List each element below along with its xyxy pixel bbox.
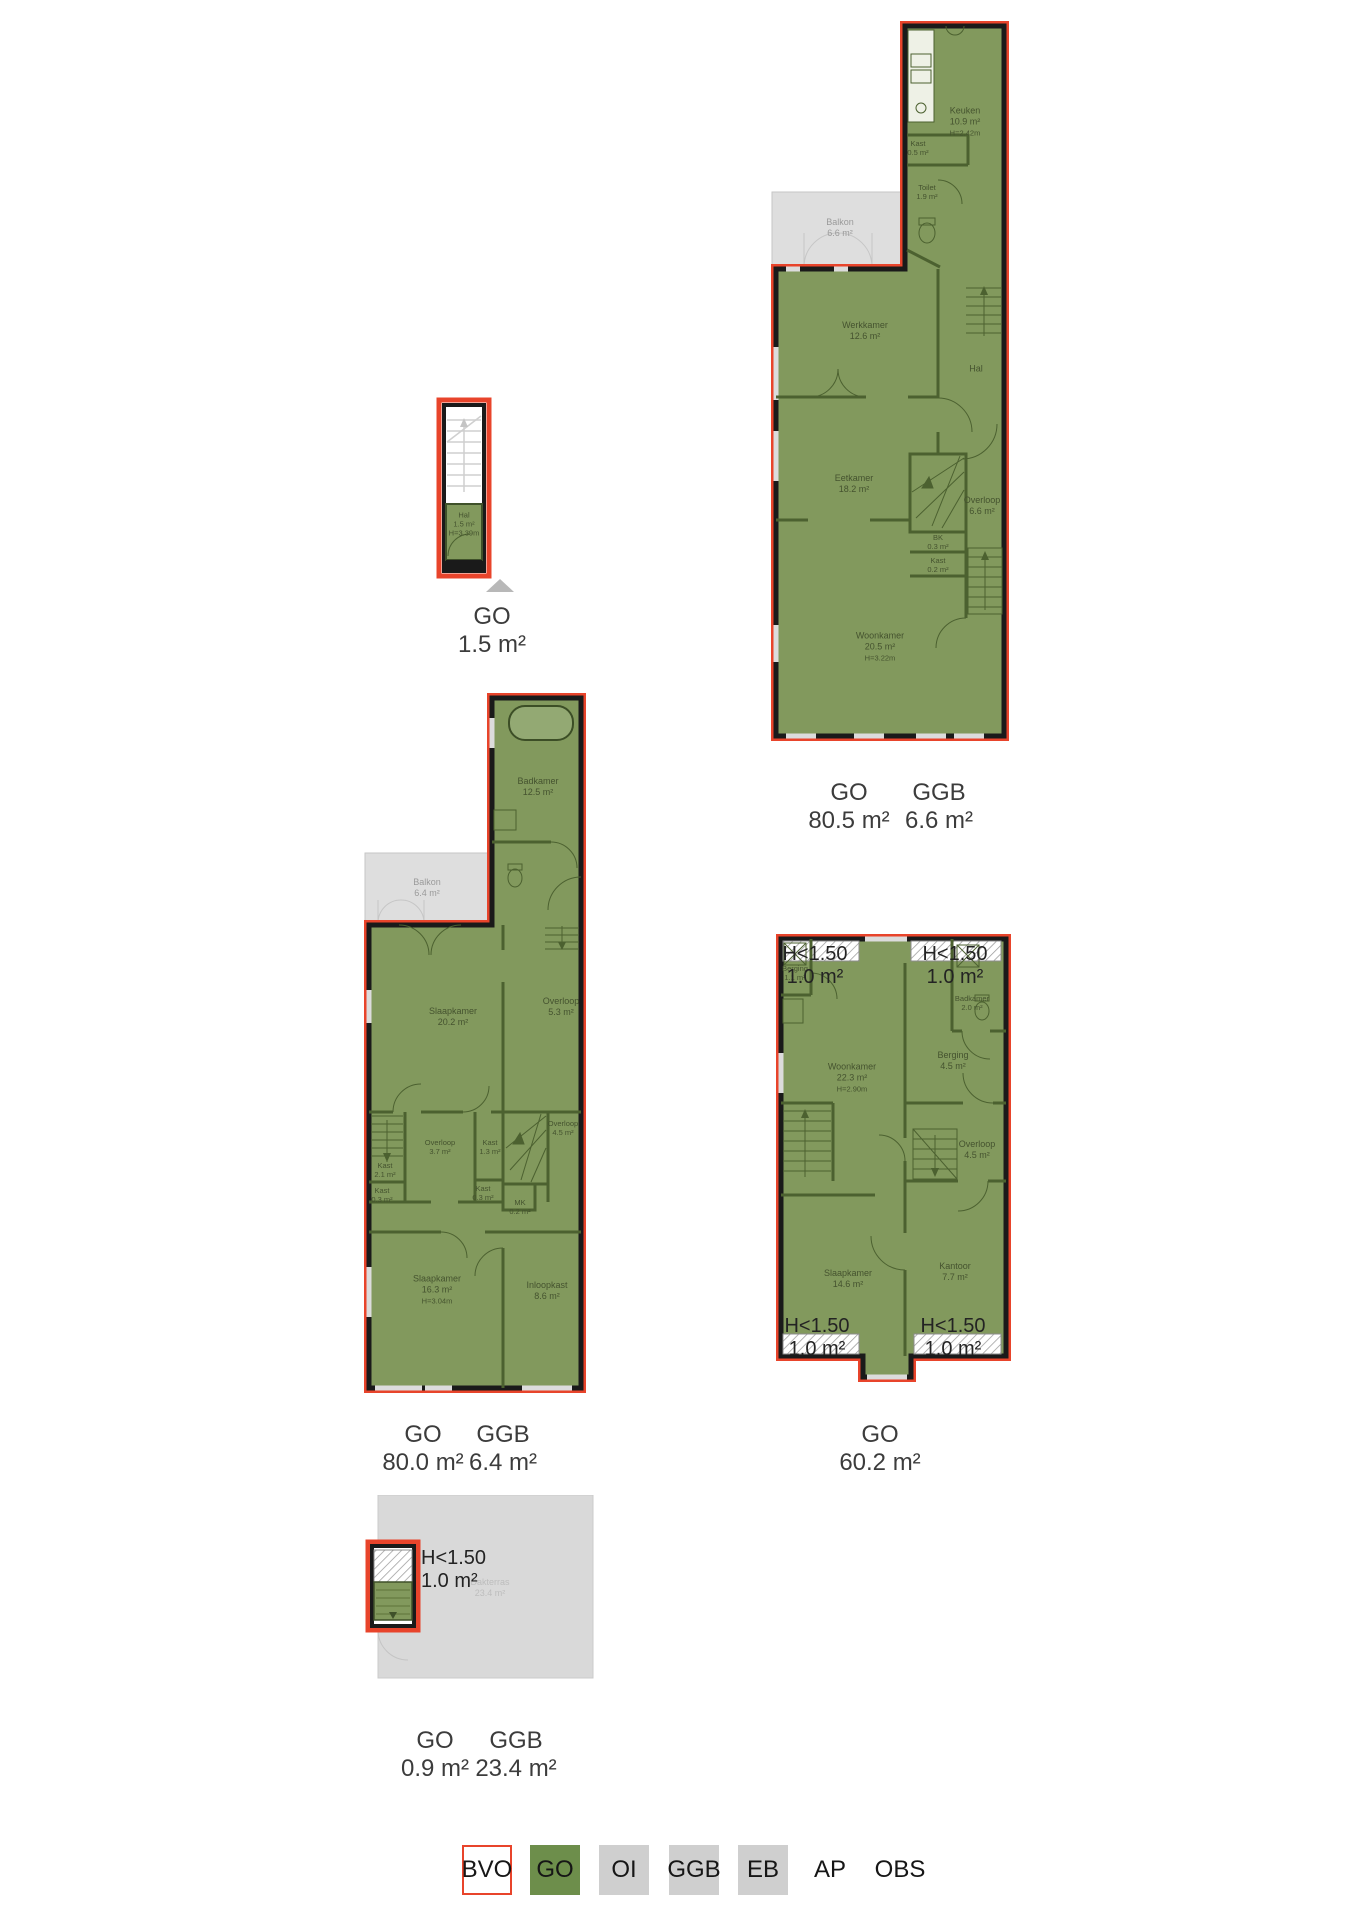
room-label-keuken: Keuken 10.9 m² H=2.42m <box>950 106 981 139</box>
room-label-bk: BK 0.3 m² <box>927 533 948 551</box>
legend-label-bvo: BVO <box>462 1856 513 1884</box>
room-label-kast-21: Kast 2.1 m² <box>374 1161 395 1179</box>
h150-label-bottom-left: H<1.501.0 m² <box>784 1315 849 1361</box>
room-label-kast-boven: Kast 0.5 m² <box>907 139 928 157</box>
room-label-overloop-onder: Overloop 4.5 m² <box>548 1119 578 1137</box>
h150-label-top-right: H<1.501.0 m² <box>922 943 987 989</box>
room-label-overloop-boven: Overloop 5.3 m² <box>543 996 580 1018</box>
legend-item-bvo: BVO <box>462 1845 512 1895</box>
legend-item-ggb: GGB <box>669 1845 719 1895</box>
room-label-kantoor: Kantoor 7.7 m² <box>939 1261 971 1283</box>
legend-item-oi: OI <box>599 1845 649 1895</box>
legend-label-obs: OBS <box>875 1856 926 1884</box>
legend-item-ap: AP <box>805 1845 855 1895</box>
room-label-berging: Berging 4.5 m² <box>937 1050 968 1072</box>
room-label-slaapkamer-voor: Slaapkamer 20.2 m² <box>429 1006 477 1028</box>
h150-label-bottom-right: H<1.501.0 m² <box>920 1315 985 1361</box>
room-label-mk: MK 0.2 m² <box>509 1198 530 1216</box>
h150-label-roof: H<1.501.0 m² <box>421 1547 486 1593</box>
area-label-hal-go: GO 1.5 m² <box>458 603 526 659</box>
room-label-kast-03a: Kast 0.3 m² <box>371 1186 392 1204</box>
room-label-overloop: Overloop 6.6 m² <box>964 495 1001 517</box>
legend-label-ggb: GGB <box>667 1856 720 1884</box>
room-label-badkamer: Badkamer 2.0 m² <box>955 994 989 1012</box>
room-label-slaapkamer-achter: Slaapkamer 16.3 m² H=3.04m <box>413 1274 461 1307</box>
area-label-roof-go: GO 0.9 m² <box>401 1727 469 1783</box>
room-label-slaapkamer: Slaapkamer 14.6 m² <box>824 1268 872 1290</box>
floorplan-sheet: Hal 1.5 m² H=3.39m GO 1.5 m² <box>0 0 1358 1920</box>
area-label-third-go: GO 60.2 m² <box>839 1421 920 1477</box>
h150-label-top-left: H<1.501.0 m² <box>782 943 847 989</box>
room-label-werkkamer: Werkkamer 12.6 m² <box>842 320 888 342</box>
wall-band <box>446 560 482 569</box>
plan-third-floor: H<1.501.0 m² H<1.501.0 m² H<1.501.0 m² H… <box>775 933 1012 1385</box>
room-label-overloop: Overloop 4.5 m² <box>959 1139 996 1161</box>
room-label-inloopkast: Inloopkast 8.6 m² <box>526 1280 567 1302</box>
area-label-first-ggb: GGB 6.6 m² <box>905 779 973 835</box>
plan-second-floor: Badkamer 12.5 m² Balkon 6.4 m² Slaapkame… <box>363 692 587 1394</box>
area-label-second-ggb: GGB 6.4 m² <box>469 1421 537 1477</box>
area-label-first-go: GO 80.5 m² <box>808 779 889 835</box>
room-label-toilet: Toilet 1.9 m² <box>916 183 937 201</box>
direction-triangle-icon <box>486 579 514 592</box>
room-label-kast-midden: Kast 0.2 m² <box>927 556 948 574</box>
room-label-kast-03b: Kast 0.3 m² <box>472 1184 493 1202</box>
legend-item-eb: EB <box>738 1845 788 1895</box>
room-label-badkamer: Badkamer 12.5 m² <box>517 776 558 798</box>
legend-item-obs: OBS <box>872 1845 928 1895</box>
legend-label-eb: EB <box>747 1856 779 1884</box>
plan-hal-entrance: Hal 1.5 m² H=3.39m <box>435 396 493 582</box>
room-label-hal: Hal 1.5 m² H=3.39m <box>449 511 480 538</box>
room-label-eetkamer: Eetkamer 18.2 m² <box>835 473 874 495</box>
room-label-kast-13: Kast 1.3 m² <box>479 1138 500 1156</box>
room-label-woonkamer: Woonkamer 20.5 m² H=3.22m <box>856 631 904 664</box>
plan-hal-entrance-drawing <box>435 396 493 582</box>
plan-roof: H<1.501.0 m² Dakterras 23.4 m² <box>363 1495 597 1700</box>
legend-label-go: GO <box>536 1856 573 1884</box>
plan-first-floor: Keuken 10.9 m² H=2.42m Kast 0.5 m² Toile… <box>770 20 1010 742</box>
room-label-woonkamer: Woonkamer 22.3 m² H=2.90m <box>828 1062 876 1095</box>
area-label-second-go: GO 80.0 m² <box>382 1421 463 1477</box>
room-label-balkon: Balkon 6.6 m² <box>826 217 854 239</box>
legend-item-go: GO <box>530 1845 580 1895</box>
legend-label-oi: OI <box>611 1856 636 1884</box>
legend-label-ap: AP <box>814 1856 846 1884</box>
room-label-balkon: Balkon 6.4 m² <box>413 877 441 899</box>
area-label-roof-ggb: GGB 23.4 m² <box>475 1727 556 1783</box>
room-label-overloop-midden: Overloop 3.7 m² <box>425 1138 455 1156</box>
room-label-hal: Hal <box>969 364 983 375</box>
stair-enclosure <box>368 1542 418 1630</box>
